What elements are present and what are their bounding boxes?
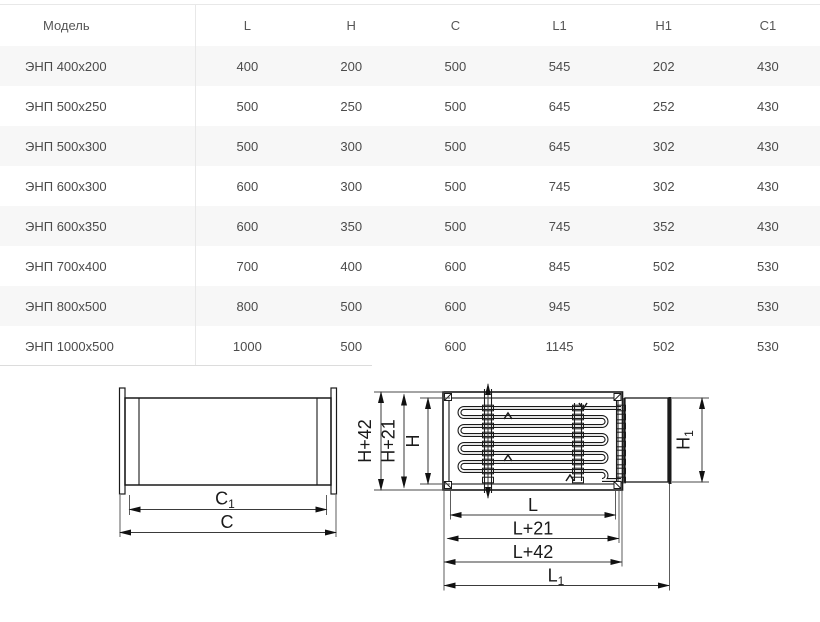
cell-l: 700 (195, 246, 299, 286)
cell-c: 500 (403, 206, 507, 246)
dim-label-c: C (221, 512, 234, 532)
cell-l1: 645 (507, 126, 611, 166)
cell-l1: 945 (507, 286, 611, 326)
cell-h: 400 (299, 246, 403, 286)
cell-c1: 530 (716, 246, 820, 286)
support-bracket-1 (483, 384, 494, 498)
cell-model: ЭНП 700x400 (0, 246, 195, 286)
cell-l: 600 (195, 166, 299, 206)
cell-h: 300 (299, 126, 403, 166)
cell-l1: 745 (507, 166, 611, 206)
cell-model: ЭНП 600x350 (0, 206, 195, 246)
cell-c: 500 (403, 86, 507, 126)
table-row: ЭНП 600x350 600 350 500 745 352 430 (0, 206, 820, 246)
cell-c: 600 (403, 246, 507, 286)
cell-l1: 745 (507, 206, 611, 246)
table-row: ЭНП 600x300 600 300 500 745 302 430 (0, 166, 820, 206)
table-row: ЭНП 700x400 700 400 600 845 502 530 (0, 246, 820, 286)
cell-c: 500 (403, 126, 507, 166)
tube-pass-through-strip (617, 398, 626, 483)
cell-l1: 845 (507, 246, 611, 286)
technical-drawings: C1 C (0, 375, 820, 622)
cell-c1: 530 (716, 286, 820, 326)
dimensions-table: Модель L H C L1 H1 C1 ЭНП 400x200 400 20… (0, 4, 820, 366)
cell-h1: 302 (612, 166, 716, 206)
cell-model: ЭНП 800x500 (0, 286, 195, 326)
table-row: ЭНП 500x300 500 300 500 645 302 430 (0, 126, 820, 166)
cell-l: 500 (195, 126, 299, 166)
cell-l: 1000 (195, 326, 299, 366)
terminal-box (625, 397, 670, 484)
dim-label-l42: L+42 (513, 542, 554, 562)
column-header-l: L (195, 5, 299, 47)
table-row: ЭНП 400x200 400 200 500 545 202 430 (0, 46, 820, 86)
cell-l: 400 (195, 46, 299, 86)
cell-model: ЭНП 500x300 (0, 126, 195, 166)
cell-h1: 502 (612, 286, 716, 326)
cell-c1: 530 (716, 326, 820, 366)
cell-h: 300 (299, 166, 403, 206)
cell-h1: 302 (612, 126, 716, 166)
dim-label-l: L (528, 495, 538, 515)
table-row: ЭНП 800x500 800 500 600 945 502 530 (0, 286, 820, 326)
duct-side-view: C1 C (120, 388, 337, 537)
cell-model: ЭНП 1000x500 (0, 326, 195, 366)
length-dimensions: L L+21 L+42 L1 (444, 484, 670, 591)
cell-h1: 352 (612, 206, 716, 246)
cell-l1: 545 (507, 46, 611, 86)
cell-h: 250 (299, 86, 403, 126)
cell-c1: 430 (716, 46, 820, 86)
table-bottom-border (0, 365, 372, 366)
column-header-c: C (403, 5, 507, 47)
cell-l1: 1145 (507, 326, 611, 366)
duct-body (125, 398, 331, 485)
table-header-row: Модель L H C L1 H1 C1 (0, 5, 820, 47)
column-header-c1: C1 (716, 5, 820, 47)
cell-h: 200 (299, 46, 403, 86)
duct-flange-right (331, 388, 337, 494)
cell-h: 500 (299, 286, 403, 326)
cell-h1: 502 (612, 246, 716, 286)
heater-plan-view: H+42 H+21 H H1 (355, 384, 709, 591)
dim-label-h: H (403, 435, 423, 448)
height-dimensions: H+42 H+21 H (355, 392, 450, 490)
cell-h: 500 (299, 326, 403, 366)
cell-model: ЭНП 400x200 (0, 46, 195, 86)
duct-flange-left (120, 388, 126, 494)
cell-model: ЭНП 600x300 (0, 166, 195, 206)
cell-c: 500 (403, 166, 507, 206)
dim-label-h1: H1 (674, 430, 697, 450)
column-header-l1: L1 (507, 5, 611, 47)
dim-label-c1: C1 (215, 489, 235, 512)
dim-label-h21: H+21 (379, 419, 399, 463)
cell-c1: 430 (716, 206, 820, 246)
cell-h1: 202 (612, 46, 716, 86)
column-header-h: H (299, 5, 403, 47)
cell-l: 800 (195, 286, 299, 326)
h1-dimension: H1 (672, 398, 709, 482)
cell-c1: 430 (716, 86, 820, 126)
dim-label-l1: L1 (548, 566, 565, 589)
cell-l1: 645 (507, 86, 611, 126)
product-spec-page: Модель L H C L1 H1 C1 ЭНП 400x200 400 20… (0, 0, 820, 622)
heating-element-coil (460, 408, 622, 480)
table-row: ЭНП 1000x500 1000 500 600 1145 502 530 (0, 326, 820, 366)
cell-l: 500 (195, 86, 299, 126)
cell-c1: 430 (716, 166, 820, 206)
cell-h: 350 (299, 206, 403, 246)
cell-l: 600 (195, 206, 299, 246)
cell-c: 500 (403, 46, 507, 86)
cell-c1: 430 (716, 126, 820, 166)
column-header-model: Модель (0, 5, 195, 47)
cell-model: ЭНП 500x250 (0, 86, 195, 126)
cell-c: 600 (403, 286, 507, 326)
cell-h1: 502 (612, 326, 716, 366)
cell-h1: 252 (612, 86, 716, 126)
column-header-h1: H1 (612, 5, 716, 47)
dim-label-h42: H+42 (355, 419, 375, 463)
table-row: ЭНП 500x250 500 250 500 645 252 430 (0, 86, 820, 126)
cell-c: 600 (403, 326, 507, 366)
dim-label-l21: L+21 (513, 519, 554, 539)
